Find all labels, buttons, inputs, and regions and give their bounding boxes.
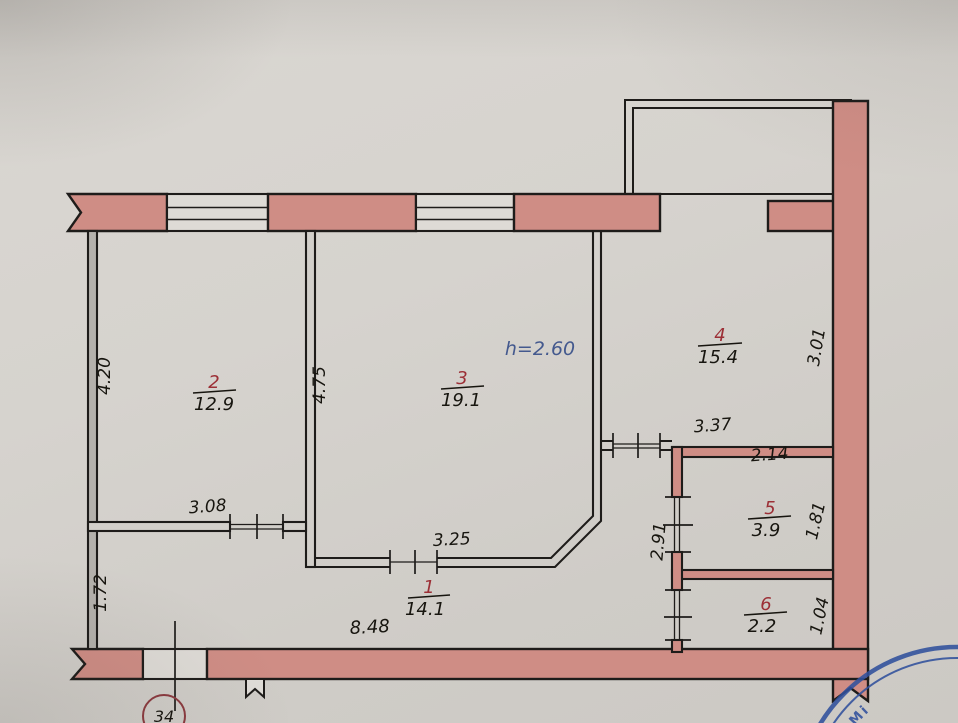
dim-room2-height: 4.20 — [95, 357, 115, 395]
wall-room5-room6 — [672, 570, 833, 579]
dim-room5-height: 1.81 — [802, 500, 830, 541]
dim-room5-width: 2.14 — [750, 444, 789, 467]
wall-room5-left-upper — [672, 447, 682, 497]
room-4-number: 4 — [714, 325, 725, 346]
wall-room2-hall-right — [283, 522, 306, 531]
dim-corridor-width: 3.37 — [693, 415, 732, 438]
wall-top-segment-3 — [514, 194, 660, 231]
wall-bottom-left-end — [72, 649, 143, 679]
room-label-5: 5 3.9 — [748, 498, 791, 541]
dim-room4-height: 3.01 — [804, 327, 830, 368]
room-2-number: 2 — [208, 372, 219, 393]
dim-corridor-height: 2.91 — [647, 522, 670, 561]
room-3-area: 19.1 — [441, 390, 481, 411]
room-label-6: 6 2.2 — [744, 594, 787, 637]
dim-room3-height: 4.75 — [310, 366, 330, 404]
wall-room6-left-lower — [672, 640, 682, 652]
balcony-inner-line — [633, 108, 843, 194]
dim-room3-width: 3.25 — [432, 529, 471, 551]
dim-hall-left-height: 1.72 — [91, 574, 111, 612]
room-1-number: 1 — [423, 577, 434, 598]
wall-bottom — [207, 649, 868, 679]
window-1 — [167, 194, 268, 231]
wall-top-segment-4 — [768, 201, 834, 231]
wall-room5-left-lower — [672, 552, 682, 590]
dim-room6-height: 1.04 — [806, 595, 833, 636]
room-5-number: 5 — [764, 498, 775, 519]
room-label-1: 1 14.1 — [405, 577, 450, 620]
balcony-outline — [625, 100, 851, 194]
room-1-area: 14.1 — [405, 599, 445, 620]
ceiling-height-note: h=2.60 — [505, 338, 575, 360]
window-2 — [416, 194, 514, 231]
balcony-outer-line — [625, 100, 851, 194]
dim-bottom-width: 8.48 — [349, 616, 390, 639]
door-room6-threshold — [675, 590, 680, 640]
entrance-door-mark — [246, 679, 264, 697]
room-labels: 2 12.9 3 19.1 4 15.4 5 3.9 6 — [193, 325, 791, 637]
wall-top-segment-2 — [268, 194, 416, 231]
room-6-number: 6 — [760, 594, 771, 615]
wall-top-segment-1 — [68, 194, 167, 231]
wall-right — [833, 101, 868, 701]
wall-room2-hall-left — [88, 522, 230, 531]
room-label-3: 3 19.1 — [441, 368, 484, 411]
room-3-number: 3 — [456, 368, 467, 389]
dim-room2-width: 3.08 — [188, 496, 227, 519]
room-4-area: 15.4 — [698, 347, 738, 368]
room-6-area: 2.2 — [748, 616, 777, 637]
section-marker-number: 34 — [154, 707, 174, 723]
floor-plan-drawing: 34 4.20 4.75 3.08 1.72 3.25 8.48 2.91 3.… — [0, 0, 958, 723]
floor-plan-photo: 34 4.20 4.75 3.08 1.72 3.25 8.48 2.91 3.… — [0, 0, 958, 723]
door-room4-threshold — [613, 444, 660, 448]
interior-walls — [88, 231, 833, 652]
room-2-area: 12.9 — [194, 394, 234, 415]
room-5-area: 3.9 — [752, 520, 781, 541]
room-label-4: 4 15.4 — [698, 325, 742, 368]
room-label-2: 2 12.9 — [193, 372, 236, 415]
